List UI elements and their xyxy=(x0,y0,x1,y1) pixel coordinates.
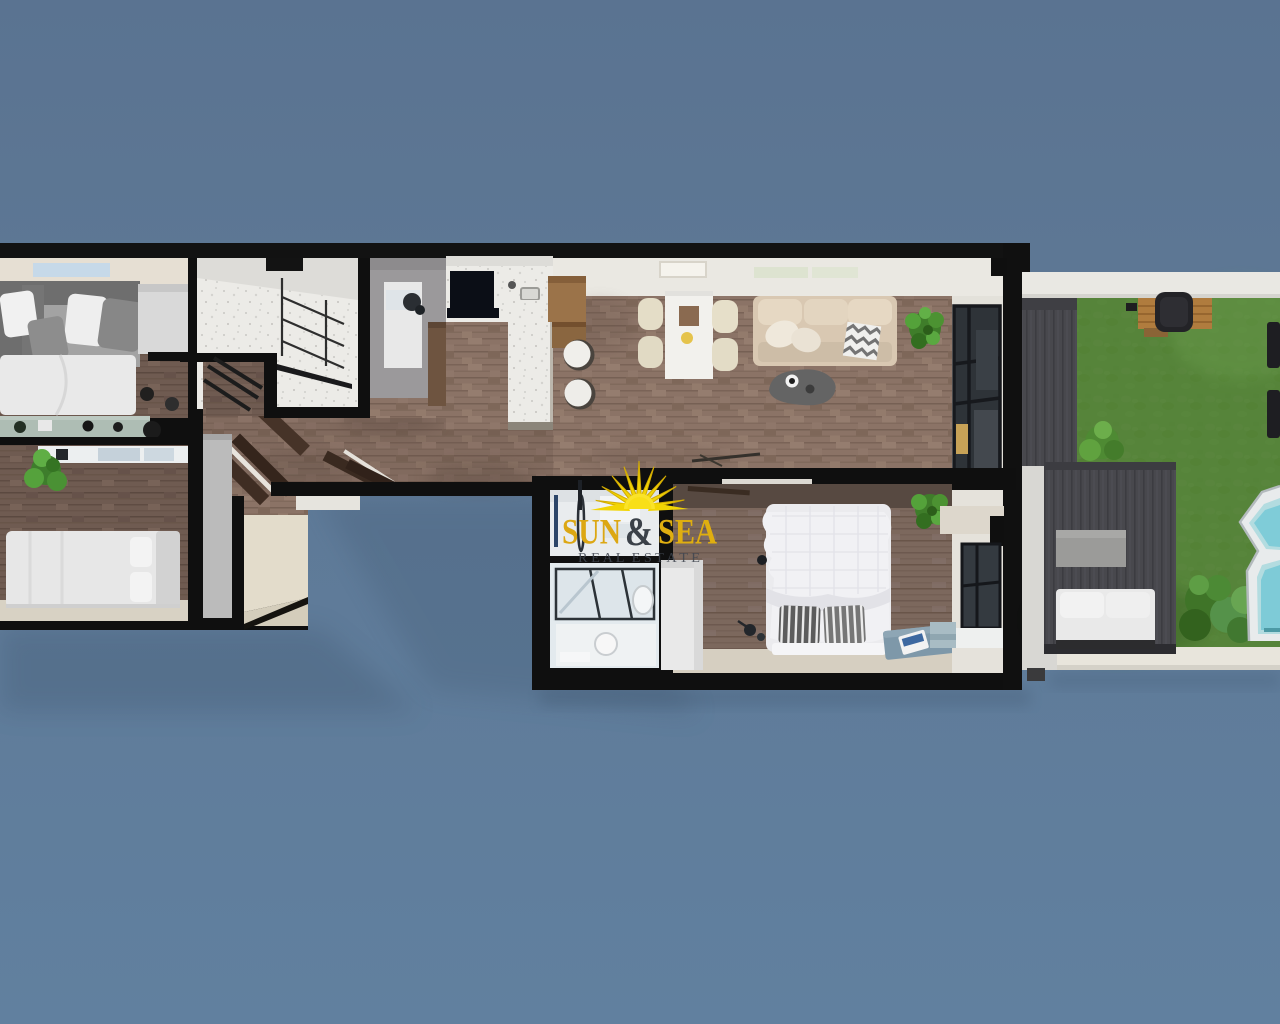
svg-text:SUN: SUN xyxy=(562,512,621,552)
svg-text:&: & xyxy=(625,509,653,554)
svg-text:SEA: SEA xyxy=(658,512,717,552)
svg-text:R E A L E S T A T E: R E A L E S T A T E xyxy=(578,550,700,565)
